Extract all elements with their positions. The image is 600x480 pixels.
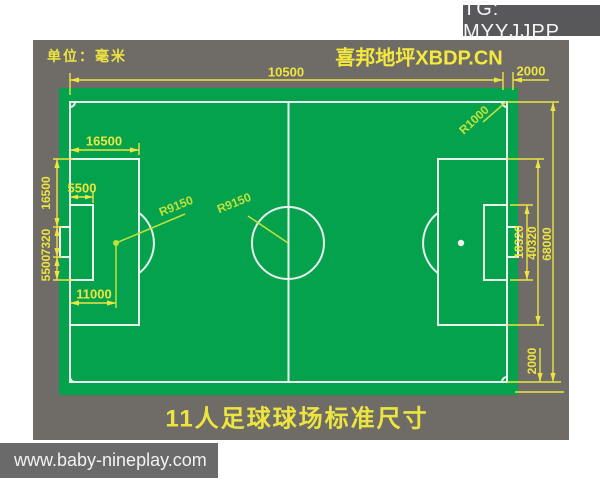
field-lines bbox=[60, 102, 518, 382]
left-penalty-arc bbox=[139, 213, 154, 273]
tg-badge: TG: MYYJJPP bbox=[463, 5, 600, 36]
right-goal-area bbox=[484, 205, 507, 280]
dim-field-length bbox=[70, 72, 549, 95]
dim-margin-bottom-label: 2000 bbox=[525, 348, 539, 375]
left-goal bbox=[60, 227, 70, 257]
dim-penalty-area-width-label: 40320 bbox=[525, 226, 539, 259]
dim-field-width-label: 68000 bbox=[540, 227, 554, 260]
diagram-caption: 11人足球球场标准尺寸 bbox=[165, 399, 428, 434]
right-penalty-arc bbox=[423, 213, 438, 273]
dim-penalty-flank-label: 16500 bbox=[39, 176, 53, 209]
left-goal-area bbox=[70, 205, 93, 280]
dim-goal-area-flank-label: 5500 bbox=[39, 255, 53, 282]
watermark-text: www.baby-nineplay.com bbox=[14, 450, 207, 471]
pitch-diagram-panel: 单位：毫米 喜邦地坪XBDP.CN bbox=[33, 40, 569, 440]
dim-field-length-label: 10500 bbox=[268, 65, 304, 80]
dim-goal-width-label: 7320 bbox=[39, 229, 53, 256]
screenshot-root: TG: MYYJJPP 单位：毫米 喜邦地坪XBDP.CN bbox=[0, 0, 600, 480]
watermark-badge: www.baby-nineplay.com bbox=[0, 443, 218, 478]
right-penalty-area bbox=[438, 159, 507, 325]
dim-penalty-depth-label: 16500 bbox=[86, 134, 122, 149]
dimension-lines bbox=[53, 72, 564, 392]
penalty-arc-radius-leader bbox=[116, 214, 185, 243]
dim-goal-area-width-label: 18320 bbox=[512, 225, 526, 258]
tg-badge-text: TG: MYYJJPP bbox=[463, 0, 600, 44]
dim-penalty-spot-label: 11000 bbox=[76, 287, 111, 302]
dim-goal-area-depth-label: 5500 bbox=[68, 181, 97, 196]
pitch-drawing bbox=[33, 40, 569, 440]
dim-margin-top-label: 2000 bbox=[517, 64, 546, 79]
right-penalty-spot bbox=[459, 241, 463, 245]
